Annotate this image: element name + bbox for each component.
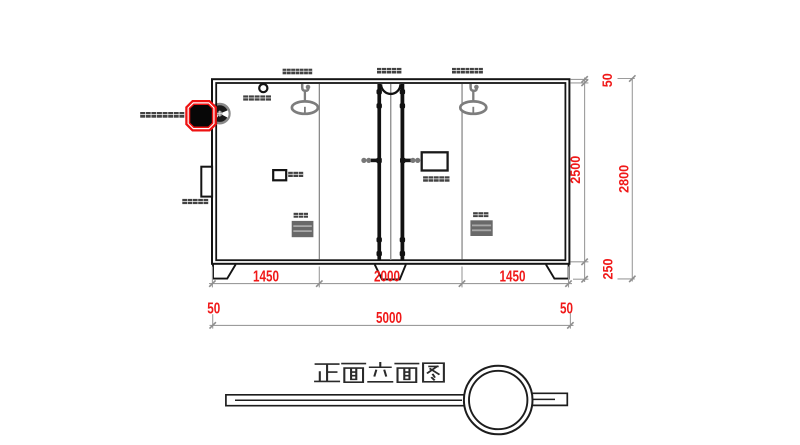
svg-text:2500: 2500 xyxy=(567,156,583,184)
svg-text:1450: 1450 xyxy=(253,266,279,284)
svg-text:250: 250 xyxy=(600,259,616,280)
svg-text:50: 50 xyxy=(599,73,615,87)
svg-text:5000: 5000 xyxy=(376,308,402,326)
svg-text:2000: 2000 xyxy=(374,266,400,284)
svg-text:2800: 2800 xyxy=(616,165,632,193)
svg-text:50: 50 xyxy=(560,299,573,317)
svg-text:1450: 1450 xyxy=(500,266,526,284)
svg-text:50: 50 xyxy=(207,299,220,317)
